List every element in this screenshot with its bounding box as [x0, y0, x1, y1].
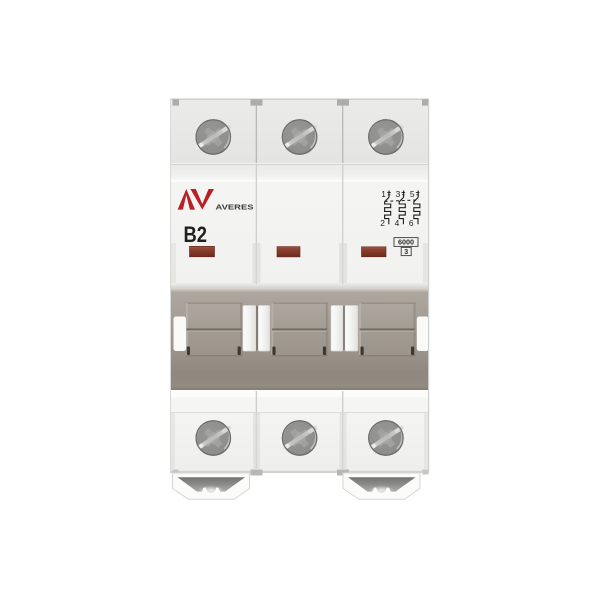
svg-text:3: 3 [396, 189, 401, 199]
svg-text:AVERES: AVERES [216, 202, 254, 211]
svg-text:4: 4 [395, 218, 400, 228]
svg-text:5: 5 [410, 189, 415, 199]
svg-text:1: 1 [381, 189, 386, 199]
svg-text:2: 2 [380, 218, 385, 228]
svg-text:6: 6 [409, 218, 414, 228]
svg-text:6000: 6000 [398, 238, 414, 247]
svg-text:B2: B2 [184, 222, 208, 247]
svg-text:3: 3 [404, 249, 408, 256]
